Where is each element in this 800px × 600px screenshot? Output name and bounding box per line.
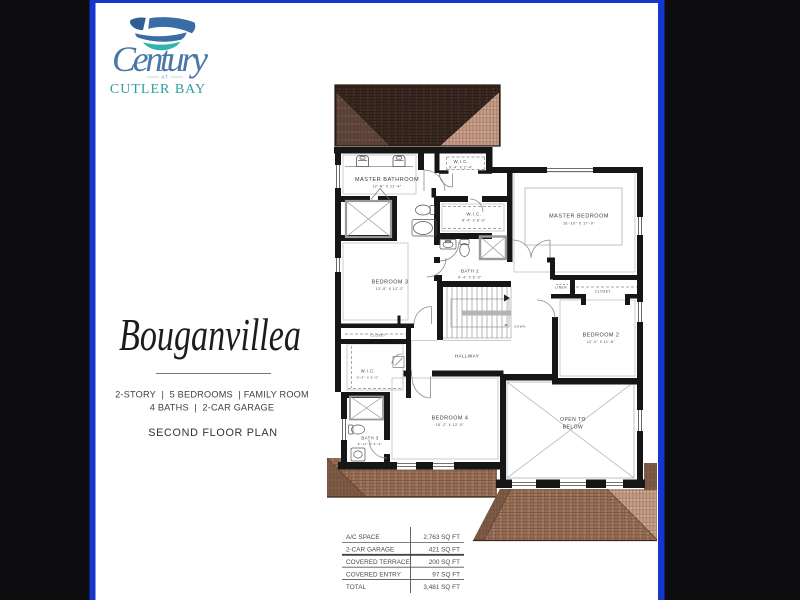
svg-text:CLOSET: CLOSET [370, 334, 385, 338]
svg-text:8'-4" X 8'-0": 8'-4" X 8'-0" [462, 219, 486, 223]
svg-text:Bouganvillea: Bouganvillea [119, 309, 301, 360]
svg-text:BATH 2: BATH 2 [461, 269, 479, 274]
svg-text:12'-8" X 11'-4": 12'-8" X 11'-4" [372, 185, 402, 189]
svg-text:W.I.C.: W.I.C. [454, 159, 469, 164]
svg-text:MASTER BATHROOM: MASTER BATHROOM [355, 177, 419, 183]
svg-text:2,763 SQ FT: 2,763 SQ FT [423, 534, 460, 541]
svg-text:12'-8" X 12'-2": 12'-8" X 12'-2" [376, 287, 405, 291]
svg-text:SECOND FLOOR PLAN: SECOND FLOOR PLAN [148, 427, 278, 439]
svg-text:BELOW: BELOW [563, 425, 584, 431]
svg-text:16'-10" X 17'-9": 16'-10" X 17'-9" [563, 222, 595, 226]
svg-text:MASTER BEDROOM: MASTER BEDROOM [549, 214, 609, 220]
svg-text:CUTLER BAY: CUTLER BAY [110, 82, 206, 97]
svg-text:OPEN TO: OPEN TO [560, 417, 586, 423]
svg-text:8'-11" X 5'-4": 8'-11" X 5'-4" [358, 442, 383, 446]
svg-text:3,481 SQ FT: 3,481 SQ FT [423, 584, 460, 591]
svg-text:BEDROOM 2: BEDROOM 2 [583, 333, 620, 339]
svg-text:AT: AT [161, 75, 168, 80]
svg-text:Century: Century [112, 39, 208, 79]
svg-text:BEDROOM 4: BEDROOM 4 [432, 416, 469, 422]
svg-text:200 SQ FT: 200 SQ FT [429, 559, 460, 566]
svg-text:COVERED ENTRY: COVERED ENTRY [346, 571, 402, 578]
svg-text:A/C SPACE: A/C SPACE [346, 534, 380, 541]
svg-text:CLOSET: CLOSET [595, 290, 611, 294]
svg-text:BATH 3: BATH 3 [361, 436, 379, 441]
svg-text:97 SQ FT: 97 SQ FT [432, 571, 460, 578]
svg-text:HALLWAY: HALLWAY [455, 354, 480, 359]
svg-text:W.I.C.: W.I.C. [467, 212, 482, 217]
svg-text:9'-4" X 2'-4": 9'-4" X 2'-4" [449, 166, 473, 170]
svg-text:W.I.C.: W.I.C. [361, 369, 375, 374]
svg-text:DOWN: DOWN [514, 325, 526, 329]
svg-text:421 SQ FT: 421 SQ FT [429, 546, 460, 553]
svg-text:2-STORY | 5 BEDROOMS | FAMI: 2-STORY | 5 BEDROOMS | FAMILY ROOM [115, 390, 309, 400]
svg-text:2-CAR GARAGE: 2-CAR GARAGE [346, 546, 394, 553]
svg-text:9'-4" X 6'-0": 9'-4" X 6'-0" [458, 276, 482, 280]
svg-text:COVERED TERRACE: COVERED TERRACE [346, 559, 410, 566]
svg-text:6'-9" X 5'-0": 6'-9" X 5'-0" [357, 376, 380, 380]
svg-text:BEDROOM 3: BEDROOM 3 [372, 280, 409, 286]
svg-text:12'-0" X 11'-8": 12'-0" X 11'-8" [587, 340, 615, 344]
svg-text:LINEN: LINEN [555, 286, 567, 290]
svg-text:TOTAL: TOTAL [346, 584, 366, 591]
svg-text:15'-2" X 12'-0": 15'-2" X 12'-0" [436, 423, 465, 427]
svg-text:4 BATHS | 2-CAR GARAGE: 4 BATHS | 2-CAR GARAGE [150, 403, 274, 413]
